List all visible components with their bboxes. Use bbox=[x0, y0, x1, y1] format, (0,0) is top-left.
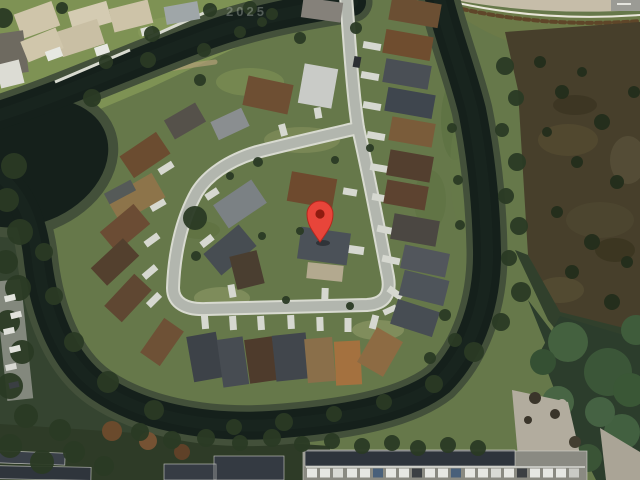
tree bbox=[140, 52, 156, 68]
tree bbox=[464, 342, 484, 362]
tree bbox=[628, 86, 640, 98]
terrain-region bbox=[611, 0, 640, 11]
tree bbox=[508, 90, 524, 106]
terrain-region bbox=[617, 3, 631, 5]
tree bbox=[203, 3, 217, 17]
tree bbox=[296, 227, 304, 235]
tree bbox=[191, 251, 201, 261]
tree bbox=[258, 232, 266, 240]
tree bbox=[232, 435, 248, 451]
dirt-pile bbox=[102, 421, 122, 441]
tree bbox=[144, 400, 164, 420]
tree bbox=[376, 394, 392, 410]
tree bbox=[511, 282, 531, 302]
parked-rv bbox=[438, 469, 448, 478]
tree bbox=[56, 2, 68, 14]
parked-rv bbox=[307, 469, 317, 478]
tree bbox=[447, 123, 457, 133]
tree bbox=[350, 22, 362, 34]
parked-rv bbox=[399, 469, 409, 478]
parked-rv bbox=[543, 469, 553, 478]
tree bbox=[584, 234, 600, 250]
tree bbox=[49, 419, 71, 441]
tree bbox=[234, 26, 246, 38]
tree bbox=[621, 256, 633, 268]
pin-dot bbox=[315, 209, 324, 218]
tree bbox=[99, 55, 113, 69]
terrain-region bbox=[566, 202, 634, 238]
tree bbox=[492, 313, 510, 331]
tree bbox=[64, 332, 84, 352]
satellite-map-view[interactable]: 2025 bbox=[0, 0, 640, 480]
tree bbox=[326, 406, 342, 422]
parked-rv bbox=[412, 469, 422, 478]
tree bbox=[257, 17, 267, 27]
storage-building bbox=[164, 464, 216, 480]
tree bbox=[495, 123, 509, 137]
tree bbox=[542, 127, 552, 137]
tree bbox=[35, 243, 53, 261]
tree bbox=[30, 450, 54, 474]
tree bbox=[440, 437, 456, 453]
pin-shadow bbox=[316, 240, 330, 246]
tree bbox=[331, 156, 339, 164]
tree bbox=[366, 144, 374, 152]
parked-rv bbox=[465, 469, 475, 478]
tree bbox=[498, 188, 514, 204]
tree bbox=[571, 156, 583, 168]
driveway bbox=[201, 315, 209, 330]
parked-rv bbox=[491, 469, 501, 478]
parked-rv bbox=[530, 469, 540, 478]
house-roof bbox=[334, 340, 362, 385]
tree bbox=[14, 404, 38, 428]
tree bbox=[604, 294, 620, 310]
tree bbox=[551, 206, 563, 218]
tree bbox=[266, 8, 278, 20]
tree bbox=[346, 302, 354, 310]
tree bbox=[83, 89, 101, 107]
tree bbox=[424, 352, 436, 364]
parked-rv bbox=[504, 469, 514, 478]
parked-rv bbox=[478, 469, 488, 478]
terrain-region bbox=[530, 349, 556, 375]
tree bbox=[163, 431, 181, 449]
parked-rv bbox=[373, 469, 383, 478]
tree bbox=[555, 85, 569, 99]
house-roof bbox=[298, 63, 338, 108]
parked-rv bbox=[556, 469, 566, 478]
tree bbox=[324, 433, 340, 449]
tree bbox=[294, 32, 306, 44]
tree bbox=[282, 296, 290, 304]
tree bbox=[448, 333, 462, 347]
tree bbox=[354, 438, 370, 454]
tree bbox=[425, 375, 443, 393]
tree bbox=[594, 114, 610, 130]
driveway bbox=[229, 316, 237, 330]
tree bbox=[508, 153, 526, 171]
tree bbox=[565, 265, 579, 279]
tree bbox=[610, 175, 624, 189]
driveway bbox=[287, 315, 295, 329]
tree bbox=[197, 429, 215, 447]
driveway bbox=[257, 316, 265, 330]
satellite-imagery bbox=[0, 0, 640, 480]
tree bbox=[263, 429, 281, 447]
tree bbox=[577, 67, 587, 77]
parked-rv bbox=[360, 469, 370, 478]
terrain-region bbox=[529, 392, 541, 404]
tree bbox=[453, 175, 463, 185]
driveway bbox=[316, 317, 323, 331]
tree bbox=[384, 435, 400, 451]
tree bbox=[97, 371, 119, 393]
tree bbox=[226, 172, 234, 180]
parked-rv bbox=[320, 469, 330, 478]
tree bbox=[243, 1, 257, 15]
parked-rv bbox=[569, 469, 579, 478]
parked-rv bbox=[347, 469, 357, 478]
tree bbox=[63, 441, 85, 463]
tree bbox=[510, 217, 528, 235]
storage-building bbox=[214, 456, 284, 480]
tree bbox=[1, 153, 27, 179]
terrain-region bbox=[585, 397, 615, 427]
parked-rv bbox=[517, 469, 527, 478]
driveway bbox=[321, 288, 328, 300]
terrain-region bbox=[569, 436, 581, 448]
tree bbox=[194, 74, 206, 86]
tree bbox=[144, 26, 160, 42]
terrain-region bbox=[524, 416, 532, 424]
parked-rv bbox=[425, 469, 435, 478]
tree bbox=[534, 56, 546, 68]
tree bbox=[470, 440, 486, 456]
tree bbox=[226, 419, 242, 435]
tree bbox=[7, 219, 33, 245]
tree bbox=[253, 157, 263, 167]
terrain-region bbox=[550, 409, 560, 419]
tree bbox=[410, 440, 426, 456]
parked-rv bbox=[451, 469, 461, 478]
tree bbox=[94, 456, 114, 476]
tree bbox=[294, 436, 310, 452]
house-roof bbox=[304, 337, 336, 383]
tree bbox=[501, 250, 517, 266]
tree bbox=[183, 206, 207, 230]
parked-rv bbox=[333, 469, 343, 478]
tree bbox=[131, 423, 149, 441]
tree bbox=[496, 57, 514, 75]
tree bbox=[439, 309, 451, 321]
tree bbox=[275, 413, 293, 431]
tree bbox=[455, 220, 465, 230]
driveway bbox=[345, 318, 352, 332]
tree bbox=[197, 43, 211, 57]
parked-rv bbox=[386, 469, 396, 478]
tree bbox=[45, 287, 63, 305]
